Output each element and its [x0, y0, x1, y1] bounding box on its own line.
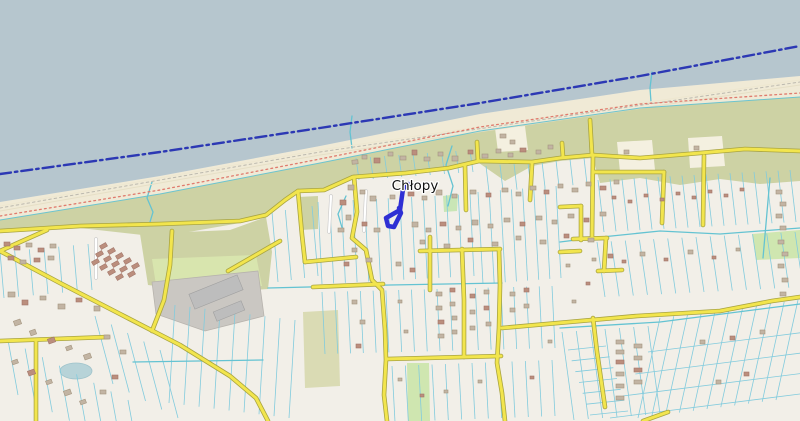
building: [440, 222, 446, 226]
building: [616, 350, 624, 354]
building: [780, 226, 786, 230]
building: [450, 288, 455, 292]
building: [486, 322, 491, 326]
building: [568, 214, 574, 218]
building: [552, 220, 557, 224]
building: [352, 160, 358, 165]
building: [496, 149, 501, 153]
building: [456, 226, 461, 230]
building: [94, 306, 100, 311]
building: [644, 194, 648, 197]
building: [584, 218, 589, 222]
building: [484, 306, 489, 310]
building: [34, 258, 40, 262]
road-yellow: [598, 270, 622, 271]
green-patch: [407, 363, 430, 421]
building: [530, 376, 534, 379]
building: [508, 153, 513, 157]
building: [524, 288, 529, 292]
building: [104, 335, 110, 339]
building: [616, 360, 624, 364]
building: [470, 310, 475, 314]
building: [346, 215, 351, 220]
building: [120, 350, 126, 354]
building: [438, 152, 443, 156]
building: [424, 157, 430, 161]
building: [640, 252, 645, 256]
road-yellow: [477, 142, 478, 161]
building: [500, 134, 506, 138]
road-yellow: [592, 155, 593, 237]
building: [778, 264, 784, 268]
building: [736, 248, 740, 251]
building: [634, 356, 642, 360]
building: [536, 150, 541, 154]
building: [486, 193, 491, 197]
building: [352, 248, 357, 252]
road-yellow: [562, 143, 563, 157]
building: [616, 396, 624, 400]
building: [374, 158, 380, 163]
building: [600, 212, 606, 216]
building: [412, 150, 417, 155]
building: [504, 218, 510, 222]
building: [438, 334, 444, 338]
building: [388, 152, 393, 156]
building: [694, 146, 699, 150]
building: [510, 140, 515, 144]
building: [660, 198, 664, 201]
building: [404, 330, 408, 333]
building: [744, 372, 749, 376]
building: [14, 246, 20, 250]
building: [468, 150, 473, 154]
road-yellow: [590, 120, 592, 155]
building: [470, 190, 476, 194]
building: [400, 156, 406, 160]
building: [426, 228, 431, 232]
building: [558, 184, 563, 188]
building: [470, 294, 475, 298]
building: [484, 290, 489, 294]
building: [516, 236, 521, 240]
building: [692, 196, 696, 199]
building: [366, 258, 372, 262]
building: [76, 298, 82, 302]
building: [340, 200, 346, 205]
building: [8, 292, 15, 297]
building: [524, 304, 529, 308]
building: [520, 148, 526, 152]
pond: [60, 363, 92, 379]
building: [338, 228, 344, 232]
building: [8, 256, 14, 260]
building: [628, 200, 632, 203]
road-yellow: [465, 166, 466, 210]
building: [26, 243, 32, 247]
building: [612, 196, 616, 199]
building: [740, 188, 744, 191]
building: [410, 268, 415, 272]
road-yellow: [560, 206, 581, 207]
building: [360, 190, 365, 194]
building: [730, 336, 735, 340]
building: [700, 340, 705, 344]
building: [452, 156, 458, 161]
building: [112, 375, 118, 379]
building: [782, 252, 788, 256]
green-patch: [303, 310, 340, 388]
map-canvas[interactable]: Chłopy: [0, 0, 800, 421]
building: [776, 190, 782, 194]
building: [622, 260, 626, 263]
building: [548, 340, 552, 343]
building: [374, 228, 380, 232]
building: [22, 300, 28, 305]
building: [356, 344, 361, 348]
road-yellow: [662, 172, 664, 223]
building: [520, 222, 525, 226]
building: [778, 240, 784, 244]
building: [510, 292, 515, 296]
building: [780, 202, 786, 206]
green-patch: [752, 230, 800, 260]
building: [544, 190, 549, 194]
building: [564, 234, 569, 238]
building: [452, 316, 457, 320]
building: [4, 242, 10, 246]
building: [664, 258, 668, 261]
building: [488, 224, 493, 228]
building: [420, 394, 424, 397]
building: [478, 380, 482, 383]
building: [390, 195, 395, 199]
building: [444, 390, 448, 393]
road-yellow: [420, 249, 500, 251]
building: [472, 220, 478, 225]
building: [452, 194, 457, 198]
building: [616, 340, 624, 344]
building: [716, 380, 721, 384]
building: [760, 330, 765, 334]
road-yellow: [604, 238, 606, 271]
building: [566, 264, 570, 267]
building: [422, 196, 427, 200]
building: [776, 214, 782, 218]
building: [396, 262, 401, 266]
building: [100, 390, 106, 394]
building: [548, 145, 553, 149]
building: [420, 240, 425, 244]
building: [436, 306, 442, 310]
building: [438, 320, 444, 324]
building: [782, 278, 788, 282]
building: [362, 155, 367, 159]
building: [492, 242, 498, 246]
building: [536, 216, 542, 220]
building: [470, 326, 475, 330]
building: [676, 192, 680, 195]
building: [362, 222, 367, 226]
road-yellow: [530, 164, 532, 200]
building: [360, 320, 365, 324]
building: [708, 190, 712, 193]
building: [452, 330, 457, 334]
building: [624, 150, 629, 154]
building: [344, 262, 349, 266]
map-viewport[interactable]: Chłopy: [0, 0, 800, 421]
building: [530, 186, 536, 190]
building: [352, 300, 357, 304]
place-label: Chłopy: [392, 178, 439, 194]
building: [40, 296, 46, 300]
building: [592, 258, 596, 261]
building: [634, 380, 642, 384]
building: [540, 240, 546, 244]
building: [616, 384, 624, 388]
building: [348, 185, 354, 190]
building: [510, 308, 515, 312]
building: [572, 300, 576, 303]
building: [634, 344, 642, 348]
building: [412, 222, 418, 227]
building: [724, 194, 728, 197]
building: [572, 188, 578, 192]
building: [600, 186, 606, 190]
building: [370, 196, 376, 201]
building: [614, 180, 619, 184]
building: [588, 238, 594, 242]
building: [436, 292, 442, 296]
building: [586, 182, 591, 186]
building: [616, 372, 624, 376]
building: [58, 304, 65, 309]
building: [502, 188, 508, 192]
building: [48, 256, 54, 260]
road-yellow: [560, 251, 580, 252]
building: [444, 244, 450, 248]
building: [398, 300, 402, 303]
building: [482, 154, 488, 158]
road-yellow: [703, 156, 704, 225]
building: [398, 378, 402, 381]
building: [688, 250, 693, 254]
building: [586, 282, 590, 285]
building: [38, 248, 44, 252]
building: [608, 254, 613, 258]
building: [20, 260, 26, 264]
building: [468, 238, 473, 242]
building: [780, 292, 786, 296]
building: [712, 256, 716, 259]
building: [516, 192, 521, 196]
building: [450, 302, 455, 306]
building: [634, 368, 642, 372]
building: [50, 244, 56, 248]
